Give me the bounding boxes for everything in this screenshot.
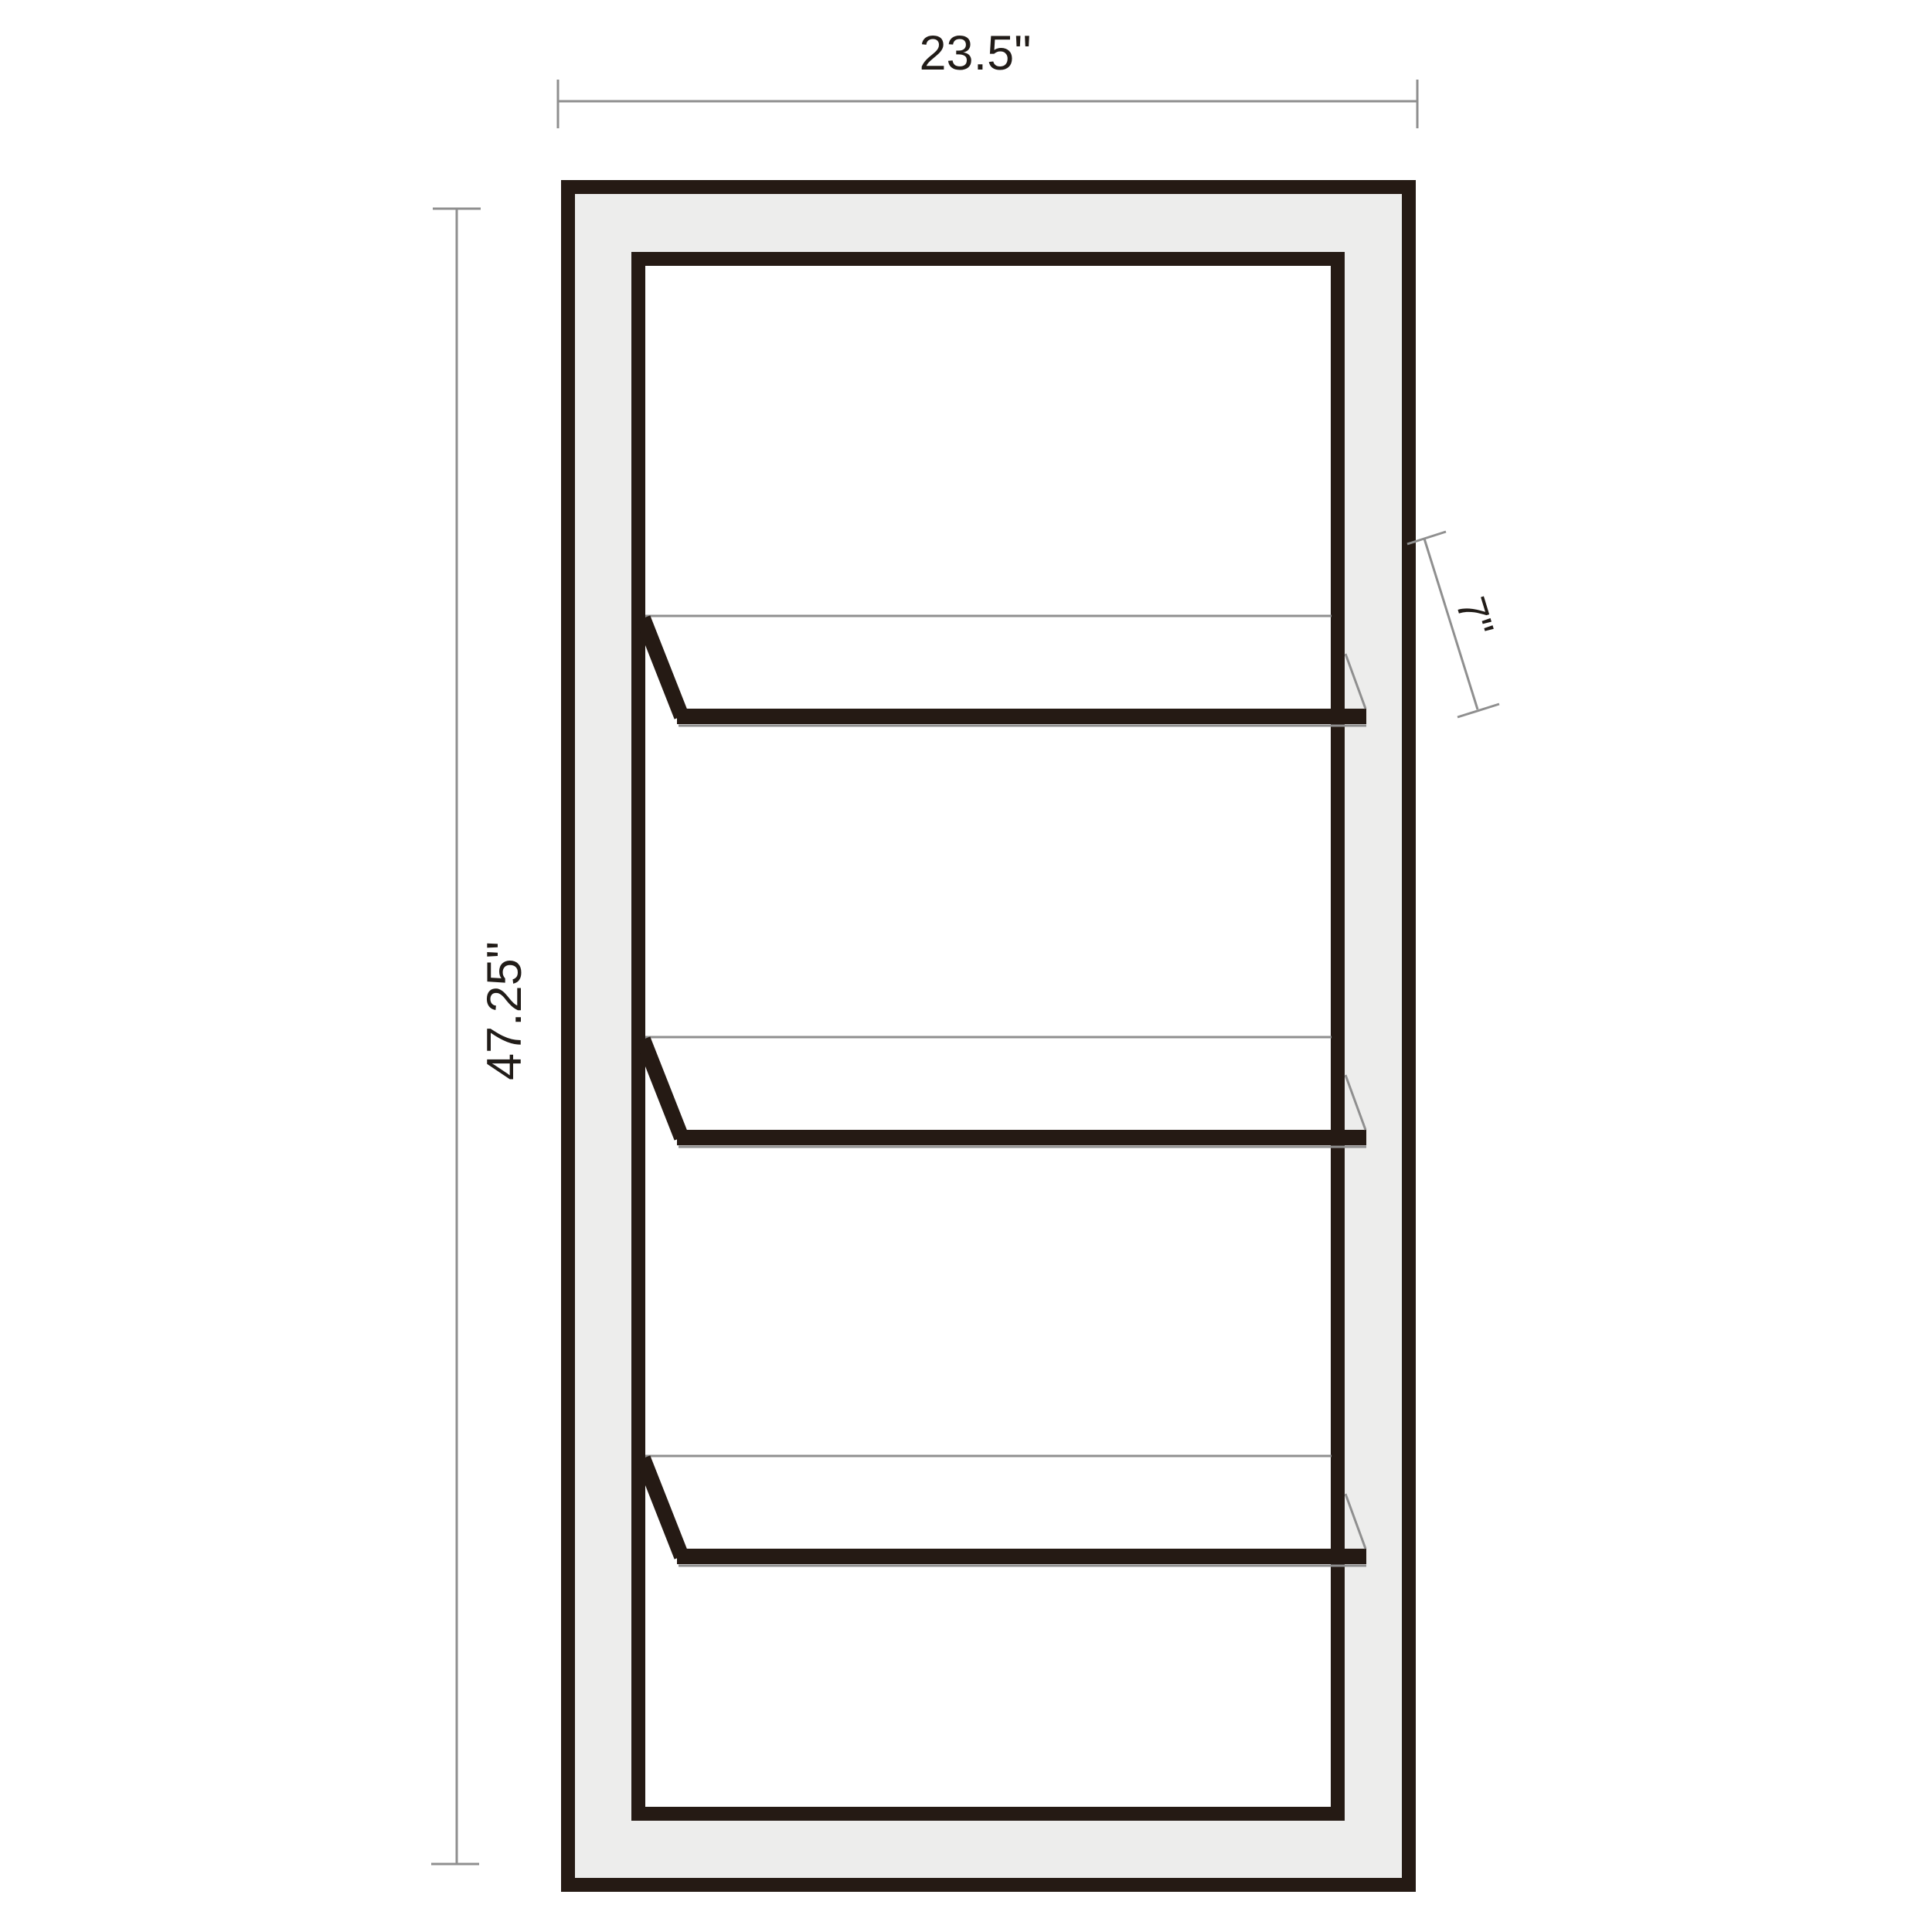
depth-dimension-tick-bottom [1458, 704, 1499, 717]
height-dimension-label: 47.25" [478, 941, 532, 1080]
shelf-1-front-edge [677, 709, 1366, 724]
height-dimension: 47.25" [431, 209, 532, 1864]
width-dimension: 23.5" [558, 26, 1417, 128]
shelf-3-front-edge [677, 1549, 1366, 1564]
dimension-diagram: 23.5" 47.25" 7" [0, 0, 1932, 1932]
shelf-2-front-edge [677, 1130, 1366, 1145]
canvas: 23.5" 47.25" 7" [0, 0, 1932, 1932]
width-dimension-label: 23.5" [920, 26, 1032, 80]
depth-dimension: 7" [1407, 532, 1502, 717]
